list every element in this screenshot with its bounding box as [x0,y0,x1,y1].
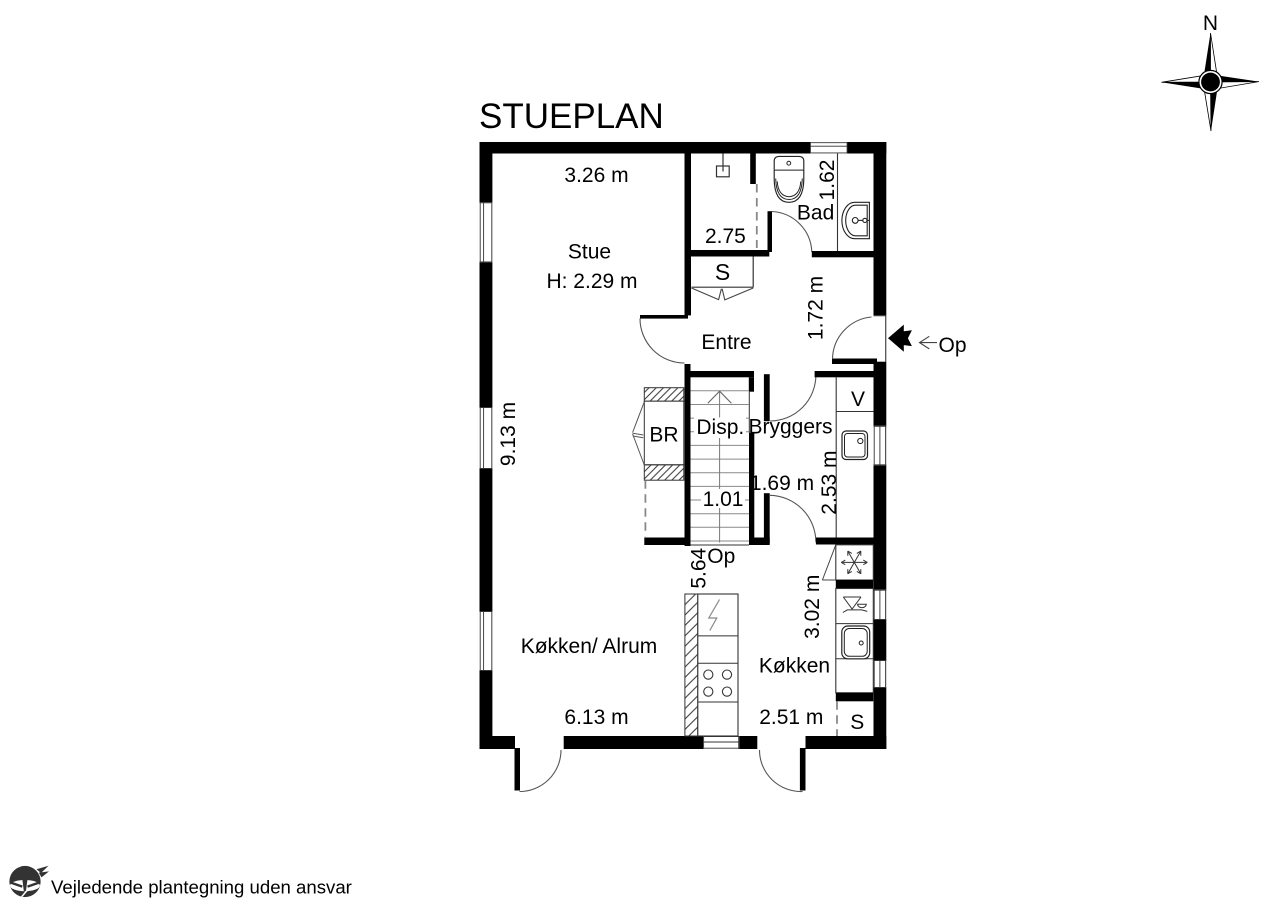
svg-text:S: S [850,711,864,734]
svg-text:6.13 m: 6.13 m [564,706,628,729]
svg-text:V: V [851,388,865,411]
svg-text:Disp.: Disp. [696,416,744,439]
svg-text:1.62: 1.62 [816,160,839,201]
svg-text:Stue: Stue [568,241,611,264]
svg-text:3.26 m: 3.26 m [564,164,628,187]
svg-text:BR: BR [649,424,678,447]
svg-text:2.75: 2.75 [705,225,746,248]
svg-text:S: S [715,259,730,285]
svg-text:Op: Op [939,334,967,357]
svg-text:H: 2.29 m: H: 2.29 m [546,270,637,293]
svg-text:1.72 m: 1.72 m [805,276,828,340]
svg-text:Køkken/ Alrum: Køkken/ Alrum [521,635,658,658]
svg-text:Op: Op [707,545,735,568]
svg-text:Bryggers: Bryggers [748,416,832,439]
svg-text:3.02 m: 3.02 m [801,575,824,639]
svg-text:Vejledende plantegning uden an: Vejledende plantegning uden ansvar [51,877,352,898]
svg-text:STUEPLAN: STUEPLAN [479,97,664,136]
svg-text:1.69 m: 1.69 m [750,472,814,495]
svg-text:2.51 m: 2.51 m [759,706,823,729]
svg-text:Entre: Entre [701,331,751,354]
svg-text:Køkken: Køkken [759,655,830,678]
svg-text:N: N [1203,12,1218,35]
svg-text:9.13 m: 9.13 m [497,402,520,466]
svg-text:2.53 m: 2.53 m [818,450,841,514]
svg-text:Bad: Bad [797,202,834,225]
svg-text:1.01: 1.01 [703,488,744,511]
